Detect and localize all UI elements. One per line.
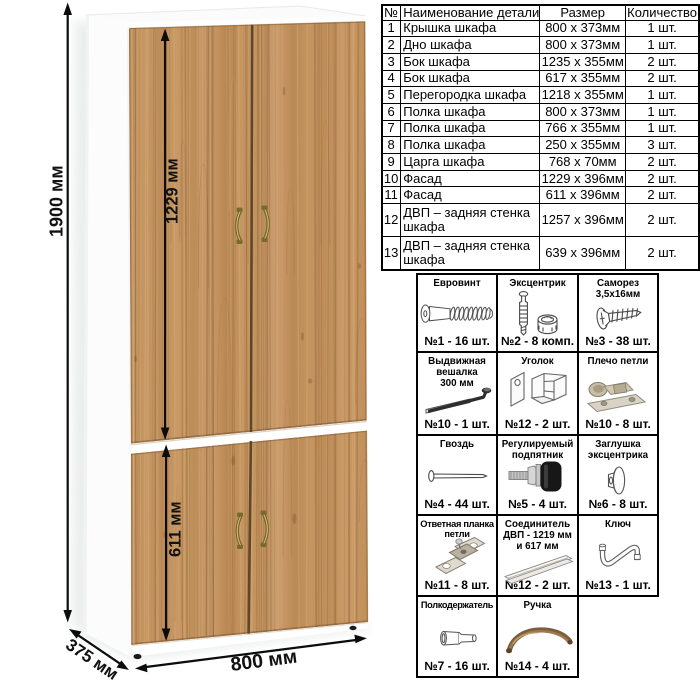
svg-text:1900 мм: 1900 мм [47, 165, 67, 237]
svg-text:1229 мм: 1229 мм [164, 158, 182, 224]
svg-text:611 мм: 611 мм [167, 501, 185, 557]
svg-text:800 мм: 800 мм [229, 646, 298, 676]
